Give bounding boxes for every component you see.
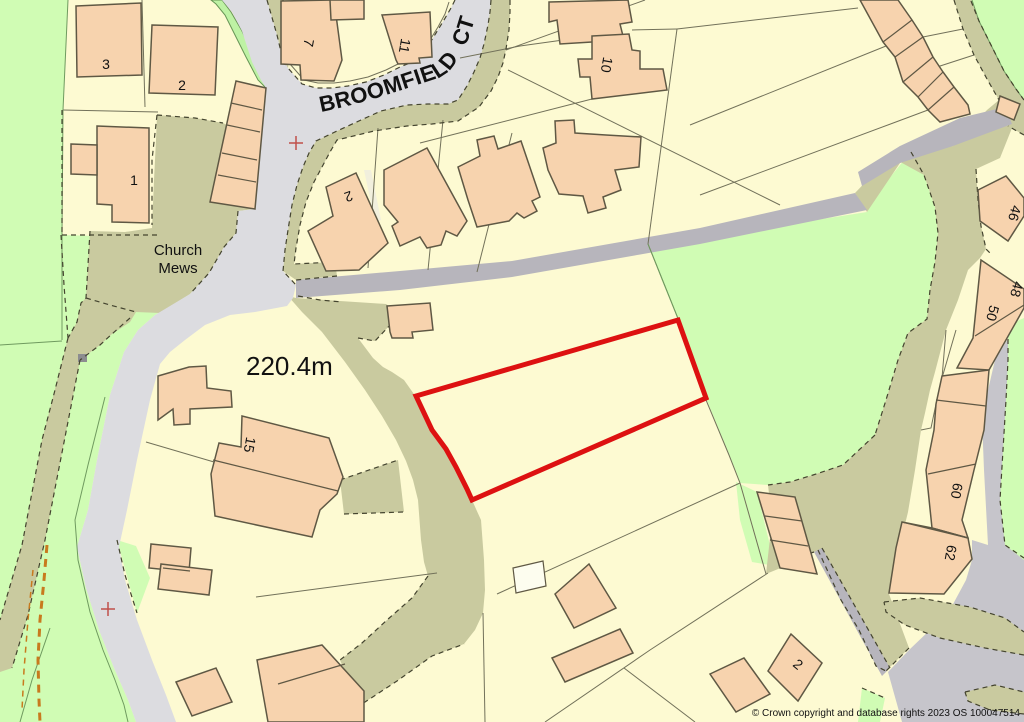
svg-text:10: 10 [598,56,616,74]
svg-text:60: 60 [948,482,966,500]
svg-text:2: 2 [178,77,186,93]
svg-text:15: 15 [241,436,259,454]
svg-text:© Crown copyright and database: © Crown copyright and database rights 20… [752,708,1021,719]
svg-text:220.4m: 220.4m [246,351,333,381]
svg-text:62: 62 [942,544,960,562]
svg-text:1: 1 [130,172,138,188]
svg-text:11: 11 [396,37,414,54]
svg-text:Church: Church [154,242,202,259]
svg-text:3: 3 [102,56,110,72]
svg-text:Mews: Mews [158,260,197,277]
